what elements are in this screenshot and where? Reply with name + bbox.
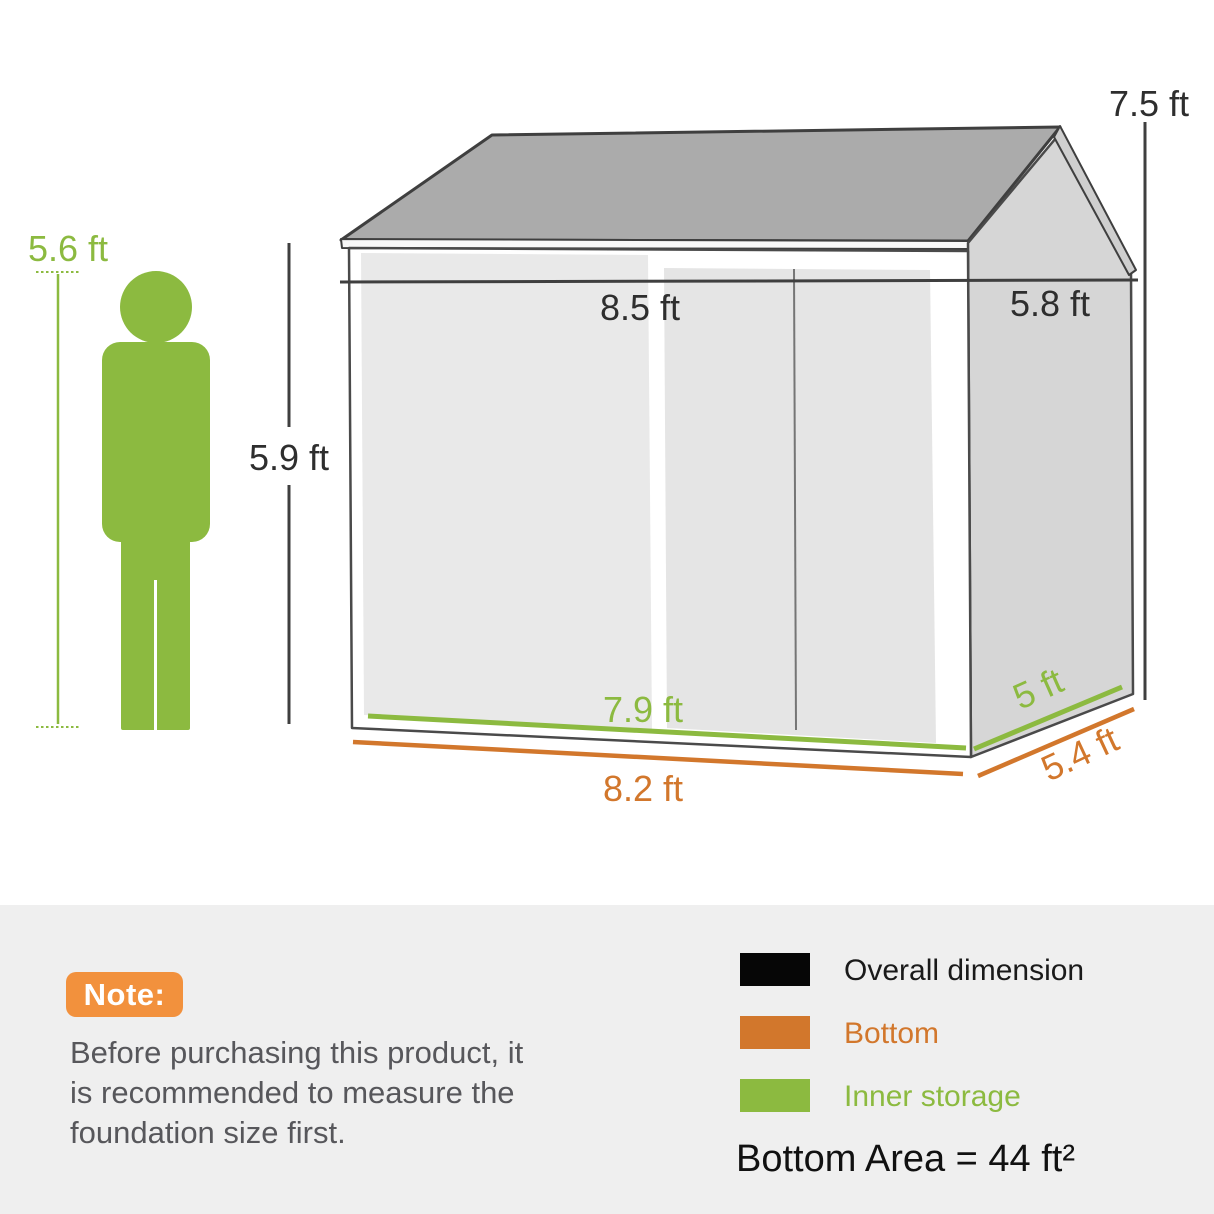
overall-width-line [340, 280, 1138, 282]
bottom-swatch [740, 1016, 810, 1049]
overall-dimension-label: Overall dimension [844, 954, 1084, 988]
person-head [120, 271, 192, 343]
note-line: is recommended to measure the [70, 1073, 670, 1113]
overall-dimension-swatch [740, 953, 810, 986]
bottom-area-text: Bottom Area = 44 ft² [736, 1138, 1075, 1181]
inner-width-label: 7.9 ft [603, 689, 683, 730]
overall-width-label: 8.5 ft [600, 287, 680, 328]
info-panel: Note: Before purchasing this product, it… [0, 905, 1214, 1214]
roof-front-slope [341, 127, 1060, 241]
note-line: foundation size first. [70, 1113, 670, 1153]
note-line: Before purchasing this product, it [70, 1033, 670, 1073]
note-badge-label: Note: [84, 977, 166, 1013]
note-badge: Note: [66, 972, 183, 1017]
wall-height-label: 5.9 ft [249, 437, 329, 478]
bottom-label: Bottom [844, 1017, 939, 1051]
overall-depth-label: 5.8 ft [1010, 283, 1090, 324]
person-height-label: 5.6 ft [28, 228, 108, 269]
shed-structure [341, 126, 1136, 757]
shed-illustration: 5.6 ft 5.9 ft 8.5 ft 5.8 ft 7.5 ft 7.9 f… [0, 0, 1214, 905]
bottom-width-label: 8.2 ft [603, 768, 683, 809]
door-panels [664, 268, 936, 743]
inner-storage-swatch [740, 1079, 810, 1112]
person-torso [102, 342, 210, 542]
overall-height-label: 7.5 ft [1109, 83, 1189, 124]
inner-storage-label: Inner storage [844, 1080, 1021, 1114]
shed-dimension-diagram: 5.6 ft 5.9 ft 8.5 ft 5.8 ft 7.5 ft 7.9 f… [0, 0, 1214, 1214]
note-text: Before purchasing this product, it is re… [70, 1033, 670, 1153]
bottom-depth-label: 5.4 ft [1035, 718, 1125, 789]
person-figure [102, 271, 210, 730]
